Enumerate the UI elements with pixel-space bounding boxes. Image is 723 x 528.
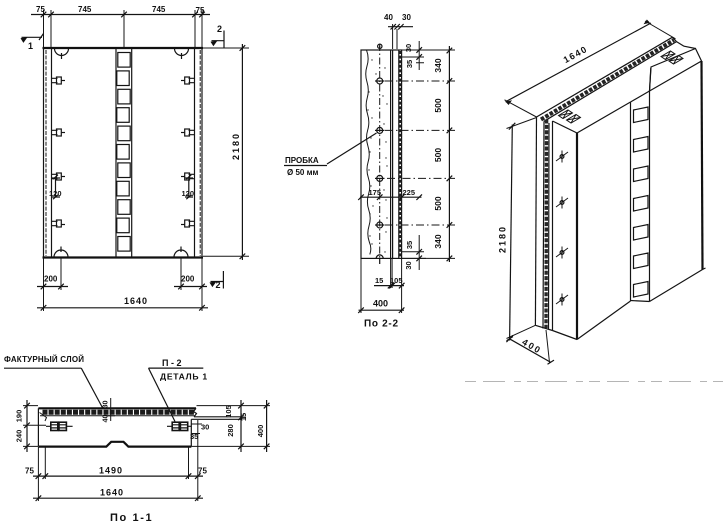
svg-text:30: 30 bbox=[201, 423, 209, 432]
svg-text:120: 120 bbox=[49, 189, 62, 198]
svg-text:200: 200 bbox=[181, 275, 195, 284]
svg-text:400: 400 bbox=[256, 425, 265, 438]
svg-text:30: 30 bbox=[402, 13, 411, 22]
svg-text:1: 1 bbox=[28, 41, 33, 51]
svg-text:40: 40 bbox=[101, 415, 110, 423]
svg-text:75: 75 bbox=[198, 467, 207, 476]
svg-text:1640: 1640 bbox=[100, 488, 124, 498]
svg-text:1490: 1490 bbox=[99, 466, 123, 476]
svg-text:400: 400 bbox=[373, 299, 388, 309]
svg-text:340: 340 bbox=[433, 234, 443, 248]
svg-text:745: 745 bbox=[78, 5, 92, 14]
svg-text:35: 35 bbox=[190, 432, 198, 441]
svg-text:745: 745 bbox=[152, 5, 166, 14]
svg-text:ФАКТУРНЫЙ СЛОЙ: ФАКТУРНЫЙ СЛОЙ bbox=[4, 355, 84, 364]
svg-text:500: 500 bbox=[433, 98, 443, 112]
svg-text:280: 280 bbox=[226, 424, 235, 437]
svg-text:2180: 2180 bbox=[231, 132, 241, 160]
svg-text:105: 105 bbox=[390, 276, 403, 285]
svg-text:15: 15 bbox=[375, 276, 383, 285]
svg-text:190: 190 bbox=[15, 410, 24, 423]
svg-text:30: 30 bbox=[404, 44, 413, 52]
svg-text:2: 2 bbox=[216, 280, 221, 290]
svg-text:75: 75 bbox=[196, 6, 205, 15]
svg-text:ПРОБКА: ПРОБКА bbox=[285, 156, 319, 165]
svg-text:500: 500 bbox=[433, 196, 443, 210]
svg-text:35: 35 bbox=[405, 241, 414, 249]
svg-text:Ø 50 мм: Ø 50 мм bbox=[287, 168, 318, 177]
svg-text:2: 2 bbox=[217, 24, 222, 34]
svg-text:П - 2: П - 2 bbox=[162, 358, 181, 368]
svg-text:30: 30 bbox=[101, 401, 110, 409]
svg-text:По 2-2: По 2-2 bbox=[364, 319, 399, 330]
svg-text:225: 225 bbox=[403, 188, 416, 197]
svg-text:500: 500 bbox=[433, 148, 443, 162]
svg-text:75: 75 bbox=[25, 467, 34, 476]
svg-text:105: 105 bbox=[224, 405, 233, 418]
svg-text:2180: 2180 bbox=[497, 225, 507, 253]
svg-text:40: 40 bbox=[384, 13, 393, 22]
svg-text:15: 15 bbox=[239, 413, 248, 421]
svg-text:По 1-1: По 1-1 bbox=[110, 512, 153, 524]
svg-text:340: 340 bbox=[433, 58, 443, 72]
svg-text:1640: 1640 bbox=[124, 296, 148, 306]
svg-text:ДЕТАЛЬ 1: ДЕТАЛЬ 1 bbox=[160, 372, 208, 382]
svg-text:200: 200 bbox=[44, 275, 58, 284]
svg-text:35: 35 bbox=[405, 60, 414, 68]
svg-text:240: 240 bbox=[15, 430, 24, 443]
svg-text:75: 75 bbox=[36, 5, 45, 14]
svg-text:30: 30 bbox=[404, 261, 413, 269]
svg-text:120: 120 bbox=[182, 189, 195, 198]
svg-text:175: 175 bbox=[369, 188, 382, 197]
